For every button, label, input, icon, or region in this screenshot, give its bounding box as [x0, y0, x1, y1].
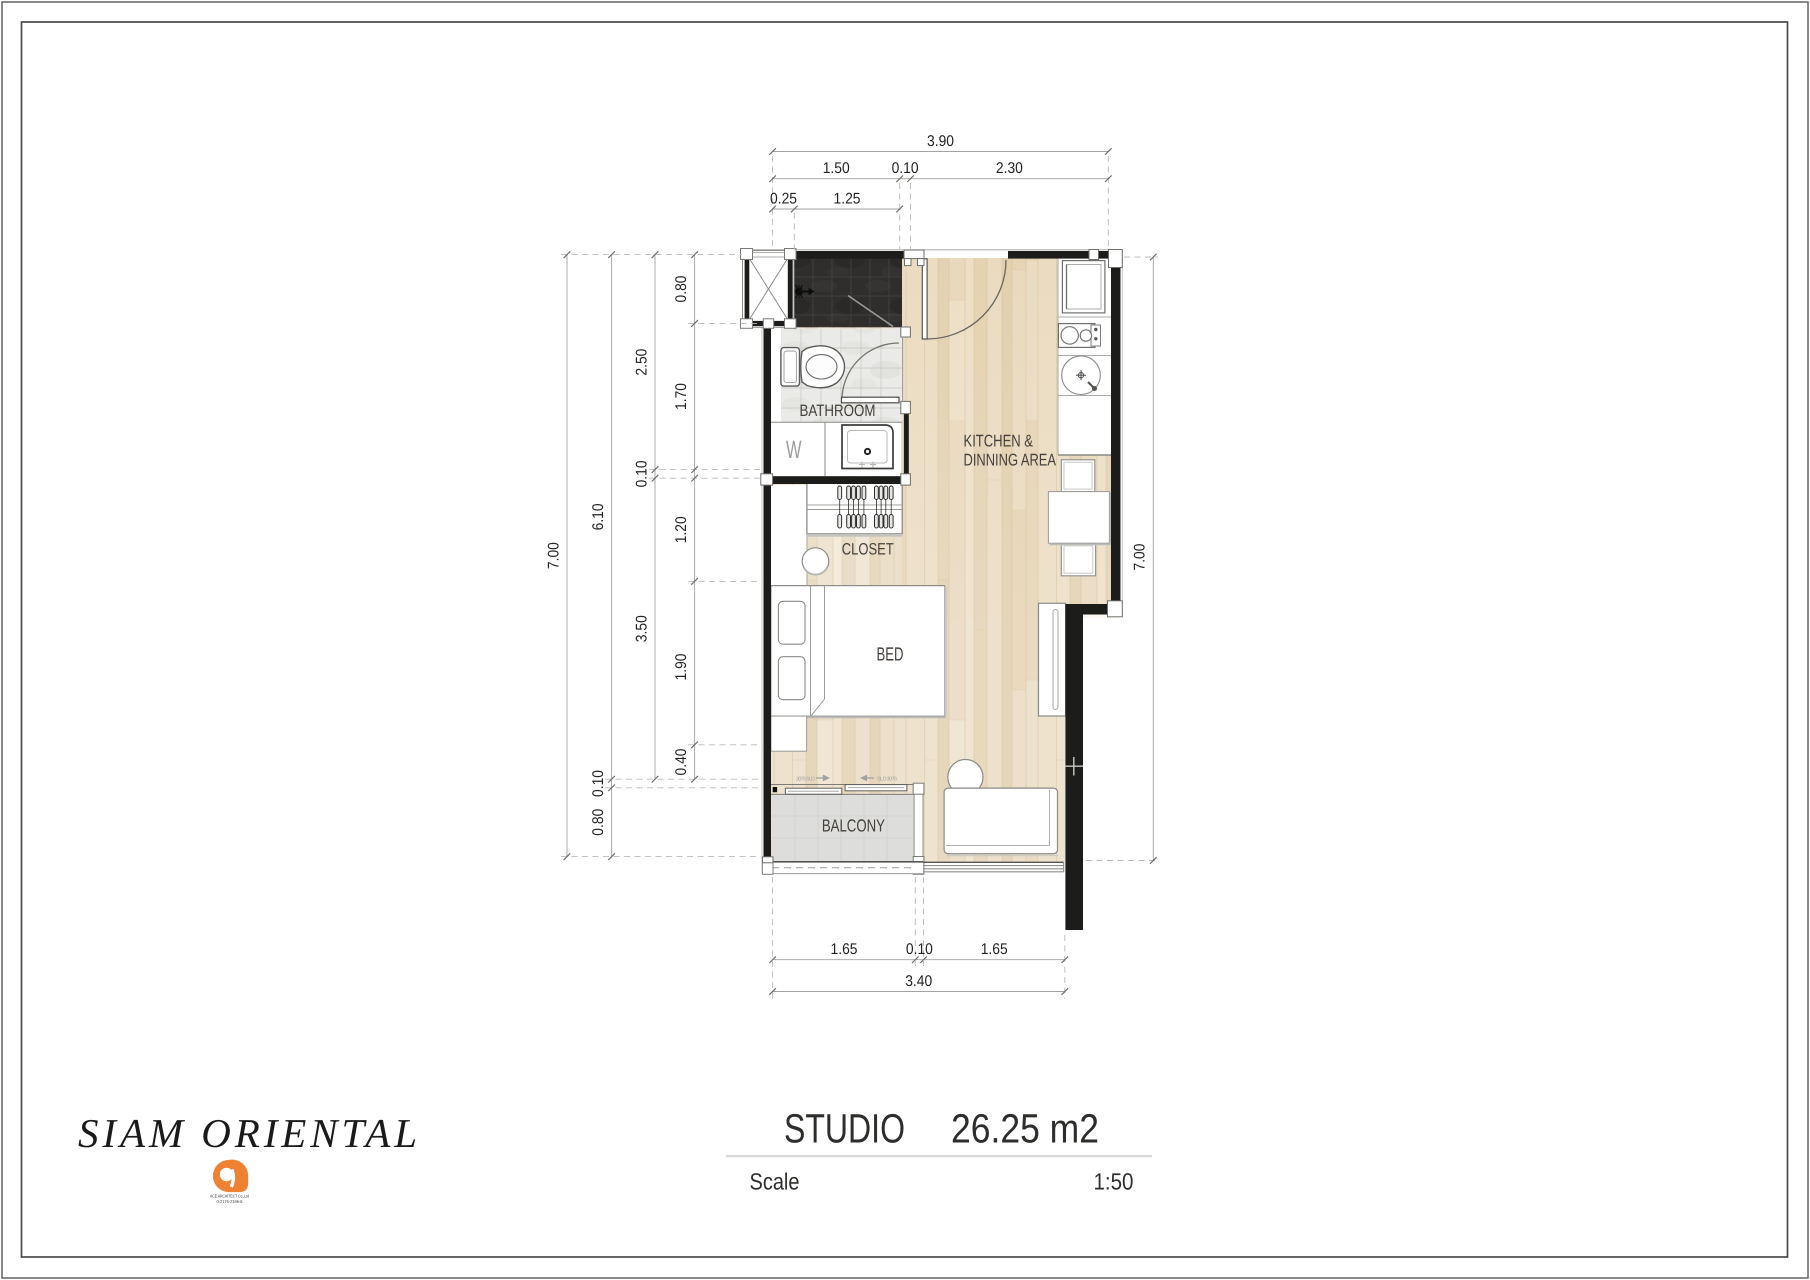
svg-text:1.25: 1.25 [834, 191, 861, 208]
svg-text:1:50: 1:50 [1094, 1169, 1134, 1195]
svg-text:0.10: 0.10 [906, 941, 933, 958]
svg-text:3.40: 3.40 [905, 973, 932, 990]
svg-text:SLD 3075: SLD 3075 [877, 777, 897, 783]
svg-text:BED: BED [877, 645, 904, 666]
svg-text:2.30: 2.30 [996, 160, 1023, 177]
svg-text:W: W [786, 436, 802, 464]
svg-text:KITCHEN &: KITCHEN & [964, 432, 1034, 451]
svg-text:26.25 m2: 26.25 m2 [951, 1106, 1099, 1152]
svg-text:6.10: 6.10 [590, 503, 607, 530]
svg-text:0.10: 0.10 [892, 160, 919, 177]
svg-text:0.80: 0.80 [673, 275, 690, 302]
svg-text:BATHROOM: BATHROOM [800, 402, 876, 420]
svg-text:1.65: 1.65 [831, 941, 858, 958]
svg-text:3.90: 3.90 [927, 133, 954, 150]
svg-text:ACE ARCHITECT Co.,Ltd: ACE ARCHITECT Co.,Ltd [210, 1194, 250, 1199]
svg-text:0-2175-2196-8: 0-2175-2196-8 [217, 1199, 244, 1204]
svg-text:SIAM ORIENTAL: SIAM ORIENTAL [78, 1110, 417, 1156]
svg-text:Scale: Scale [750, 1169, 800, 1195]
svg-text:CLOSET: CLOSET [842, 541, 894, 559]
svg-text:7.00: 7.00 [1132, 543, 1149, 570]
svg-text:2.50: 2.50 [633, 348, 650, 375]
svg-text:1.20: 1.20 [673, 516, 690, 543]
svg-text:0.10: 0.10 [590, 770, 607, 797]
svg-text:x: x [243, 1187, 246, 1193]
svg-text:DINNING AREA: DINNING AREA [964, 450, 1057, 469]
svg-text:0.80: 0.80 [590, 808, 607, 835]
svg-text:3.50: 3.50 [633, 615, 650, 642]
svg-text:BALCONY: BALCONY [822, 816, 885, 836]
svg-text:0.40: 0.40 [673, 748, 690, 775]
svg-text:1.70: 1.70 [673, 383, 690, 410]
svg-text:1.50: 1.50 [823, 160, 850, 177]
svg-text:0.10: 0.10 [633, 460, 650, 487]
svg-text:1.90: 1.90 [673, 653, 690, 680]
svg-text:1.65: 1.65 [981, 941, 1008, 958]
svg-text:7.00: 7.00 [546, 542, 563, 569]
svg-text:STUDIO: STUDIO [784, 1106, 905, 1152]
svg-text:3075 SLD: 3075 SLD [796, 777, 815, 783]
svg-text:0.25: 0.25 [770, 191, 797, 208]
